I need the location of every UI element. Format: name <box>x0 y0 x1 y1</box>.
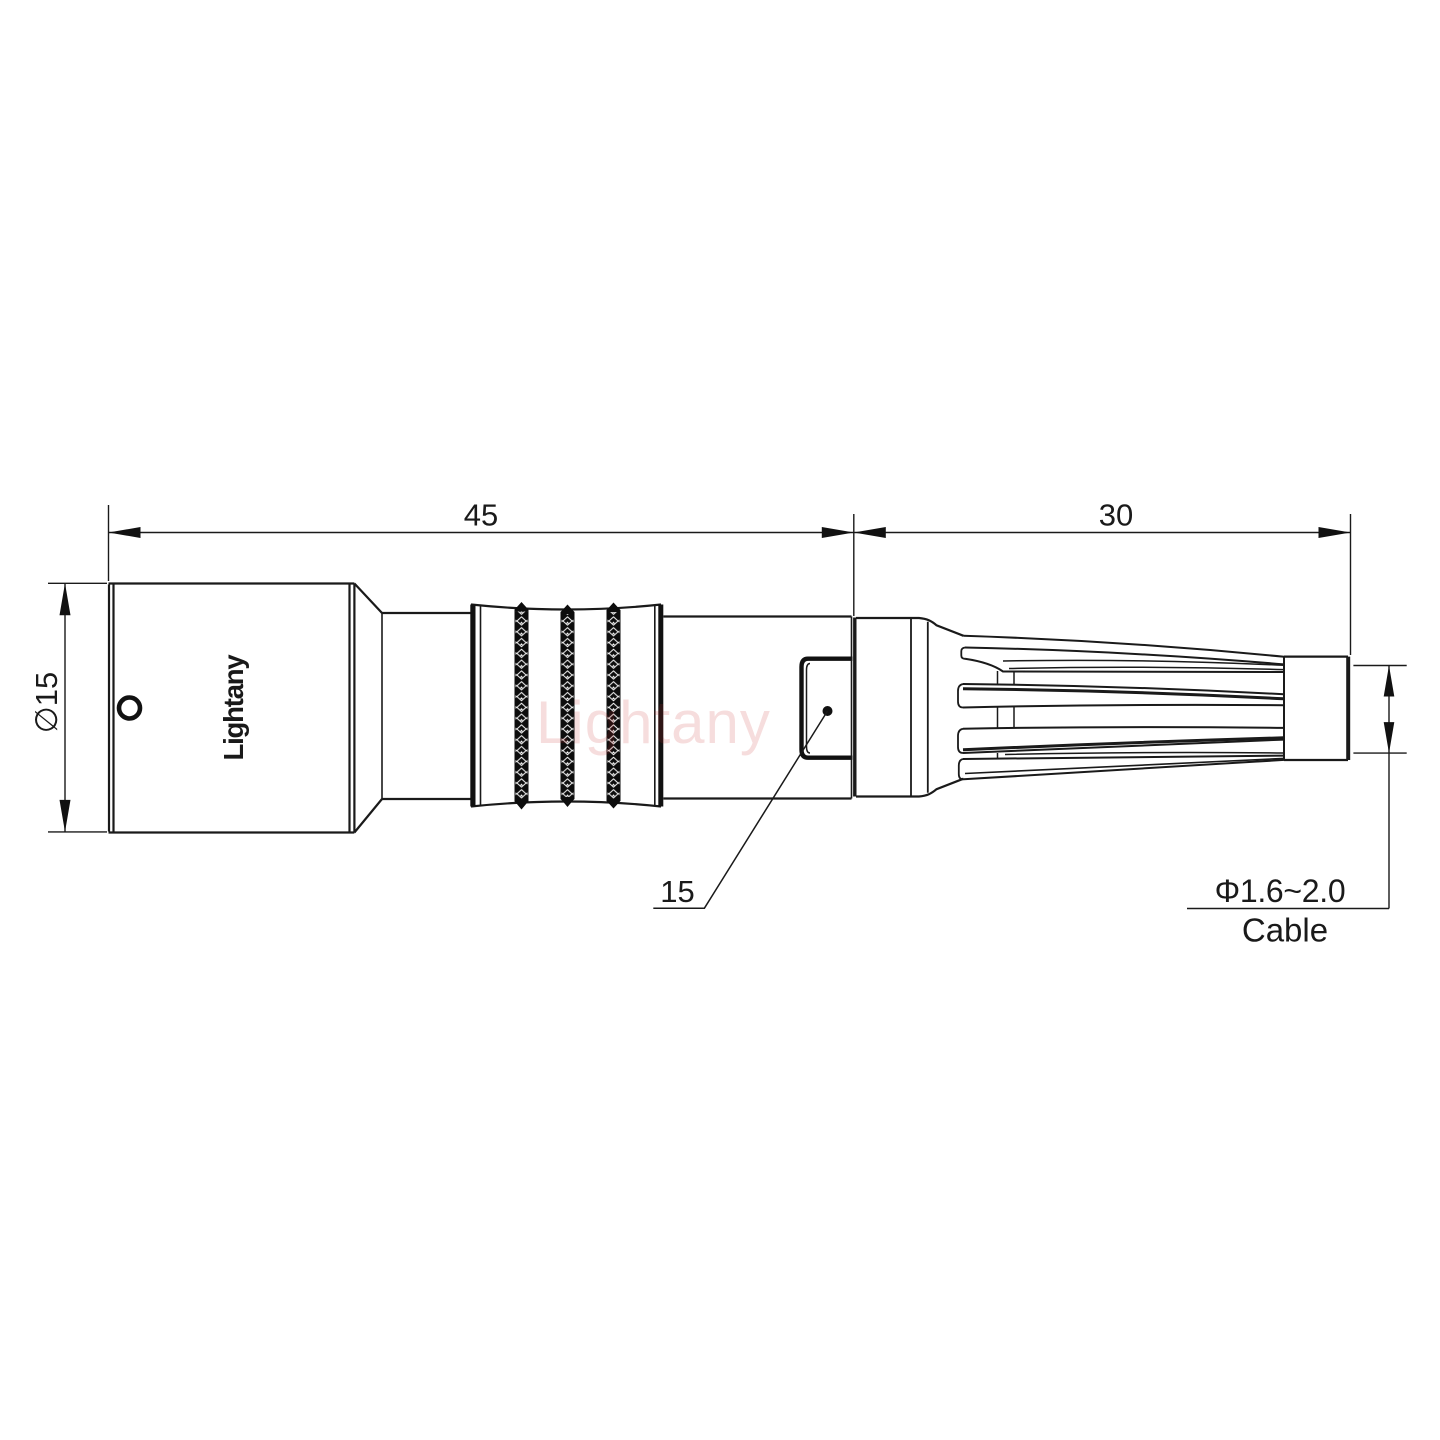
svg-text:Lightany: Lightany <box>536 689 771 756</box>
svg-text:Φ1.6~2.0: Φ1.6~2.0 <box>1215 873 1346 909</box>
svg-text:∅15: ∅15 <box>29 672 64 734</box>
svg-text:15: 15 <box>660 874 694 909</box>
svg-text:Cable: Cable <box>1242 912 1328 949</box>
svg-text:30: 30 <box>1099 498 1133 533</box>
svg-text:45: 45 <box>464 498 498 533</box>
svg-text:Lightany: Lightany <box>218 654 249 761</box>
